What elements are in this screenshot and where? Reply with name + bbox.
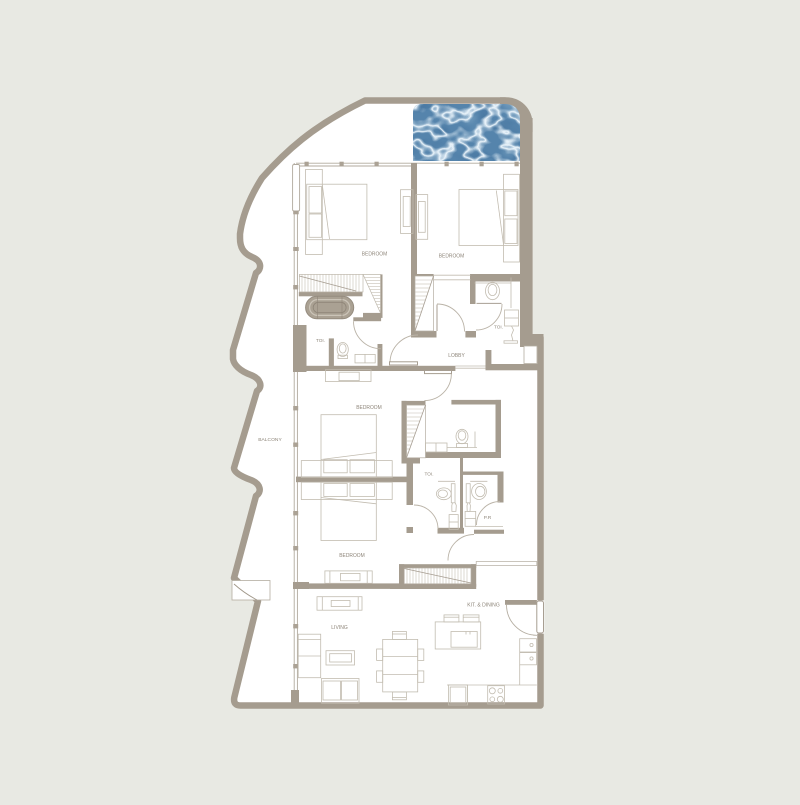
svg-text:TOI.: TOI. <box>494 325 503 331</box>
svg-text:BEDROOM: BEDROOM <box>339 553 365 559</box>
svg-text:BEDROOM: BEDROOM <box>362 251 388 257</box>
svg-text:BEDROOM: BEDROOM <box>356 405 382 411</box>
svg-text:BALCONY: BALCONY <box>258 437 282 443</box>
svg-text:LIVING: LIVING <box>331 625 348 631</box>
svg-text:KIT. & DINING: KIT. & DINING <box>467 603 500 609</box>
svg-text:P.R: P.R <box>484 515 492 521</box>
svg-text:TOI.: TOI. <box>425 472 434 478</box>
svg-text:LOBBY: LOBBY <box>448 353 465 359</box>
svg-text:BEDROOM: BEDROOM <box>439 253 465 259</box>
svg-text:TOI.: TOI. <box>316 338 325 344</box>
